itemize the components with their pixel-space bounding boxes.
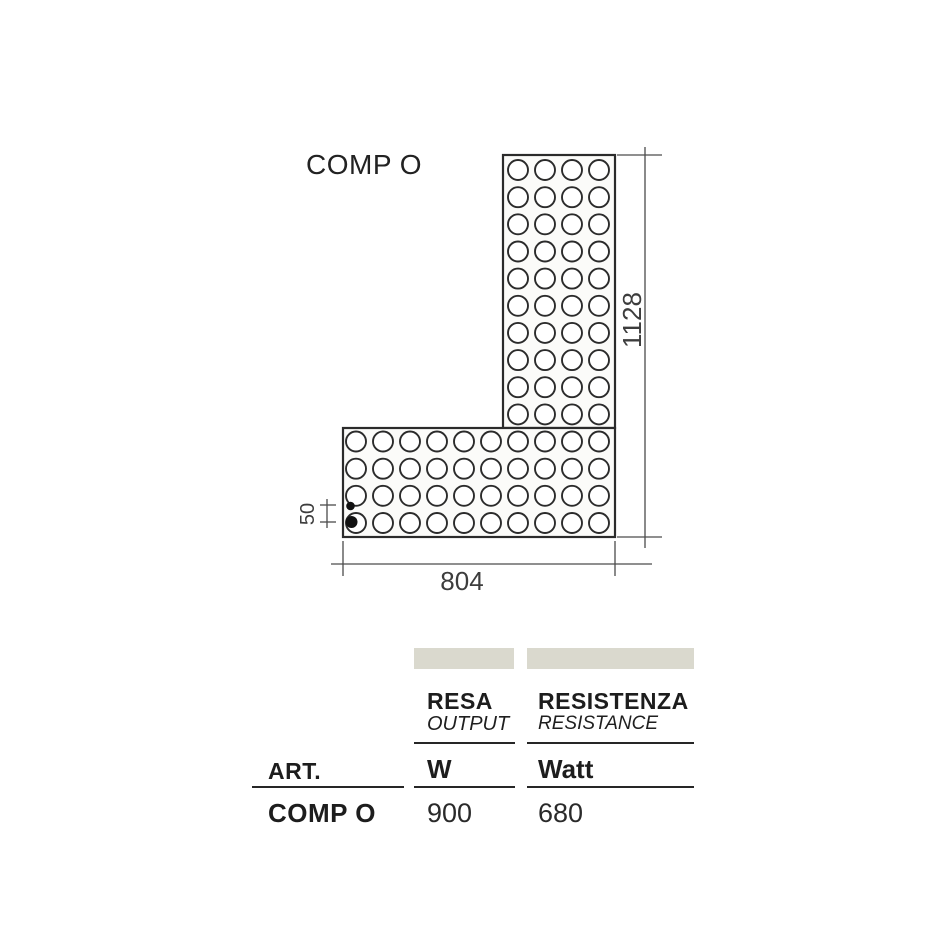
element-hole (508, 323, 528, 343)
dim-pitch-label: 50 (297, 503, 319, 525)
element-hole (589, 269, 609, 289)
element-hole (508, 350, 528, 370)
element-hole (508, 269, 528, 289)
element-hole (454, 513, 474, 533)
element-hole (589, 160, 609, 180)
element-hole (535, 323, 555, 343)
element-hole (562, 242, 582, 262)
element-hole (589, 350, 609, 370)
element-hole (562, 187, 582, 207)
element-hole (535, 513, 555, 533)
element-hole (373, 513, 393, 533)
element-hole (535, 187, 555, 207)
element-hole (427, 459, 447, 479)
element-hole (454, 486, 474, 506)
element-hole (562, 323, 582, 343)
product-diagram: 1128 804 50 (0, 0, 950, 950)
element-hole (400, 513, 420, 533)
element-hole (535, 160, 555, 180)
radiator-outline (343, 155, 615, 537)
element-hole (427, 486, 447, 506)
element-hole (508, 459, 528, 479)
element-hole (508, 187, 528, 207)
element-hole (589, 377, 609, 397)
connection-dot (346, 516, 358, 528)
element-hole (508, 486, 528, 506)
dim-height-label: 1128 (617, 292, 647, 348)
element-hole (508, 242, 528, 262)
element-hole (535, 377, 555, 397)
element-hole (535, 404, 555, 424)
element-hole (481, 486, 501, 506)
element-hole (508, 404, 528, 424)
element-hole (562, 404, 582, 424)
element-hole (535, 350, 555, 370)
element-hole (427, 432, 447, 452)
element-hole (589, 323, 609, 343)
element-hole (589, 187, 609, 207)
element-hole (562, 377, 582, 397)
element-hole (562, 214, 582, 234)
element-hole (346, 432, 366, 452)
element-hole (508, 214, 528, 234)
element-hole (508, 432, 528, 452)
element-hole (535, 214, 555, 234)
element-hole (535, 242, 555, 262)
element-hole (454, 459, 474, 479)
element-hole (562, 350, 582, 370)
element-hole (454, 432, 474, 452)
element-hole (400, 432, 420, 452)
element-hole (346, 459, 366, 479)
element-hole (508, 513, 528, 533)
element-hole (535, 432, 555, 452)
element-hole (481, 432, 501, 452)
element-hole (508, 377, 528, 397)
dim-width-label: 804 (440, 566, 483, 596)
element-hole (535, 269, 555, 289)
element-hole (562, 459, 582, 479)
element-hole (562, 296, 582, 316)
element-hole (589, 432, 609, 452)
element-hole (589, 513, 609, 533)
element-hole (481, 513, 501, 533)
element-hole (373, 432, 393, 452)
element-hole (481, 459, 501, 479)
element-hole (427, 513, 447, 533)
element-hole (562, 269, 582, 289)
element-hole (400, 486, 420, 506)
element-hole (589, 459, 609, 479)
element-hole (535, 296, 555, 316)
element-hole (589, 242, 609, 262)
element-hole (562, 160, 582, 180)
element-hole (562, 513, 582, 533)
element-hole (535, 486, 555, 506)
element-hole (589, 404, 609, 424)
element-hole (535, 459, 555, 479)
element-hole (589, 296, 609, 316)
element-hole (589, 214, 609, 234)
connection-dot (346, 502, 355, 511)
element-hole (589, 486, 609, 506)
catalog-page: COMP O 1128 804 50 RESA OUTPUT (0, 0, 950, 950)
element-hole (508, 296, 528, 316)
element-hole (373, 486, 393, 506)
element-hole (373, 459, 393, 479)
element-hole (400, 459, 420, 479)
element-hole (562, 486, 582, 506)
element-hole (562, 432, 582, 452)
element-hole (508, 160, 528, 180)
